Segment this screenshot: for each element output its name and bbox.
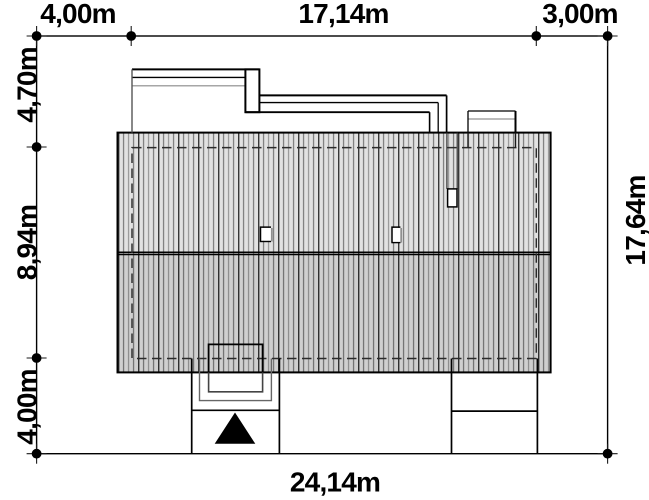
svg-text:17,64m: 17,64m: [620, 175, 649, 265]
svg-text:3,00m: 3,00m: [542, 0, 617, 29]
svg-text:17,14m: 17,14m: [298, 0, 388, 29]
svg-text:4,70m: 4,70m: [12, 47, 43, 122]
svg-text:24,14m: 24,14m: [290, 467, 380, 498]
svg-text:4,00m: 4,00m: [40, 0, 115, 29]
svg-text:8,94m: 8,94m: [12, 205, 43, 280]
svg-text:4,00m: 4,00m: [12, 369, 43, 444]
